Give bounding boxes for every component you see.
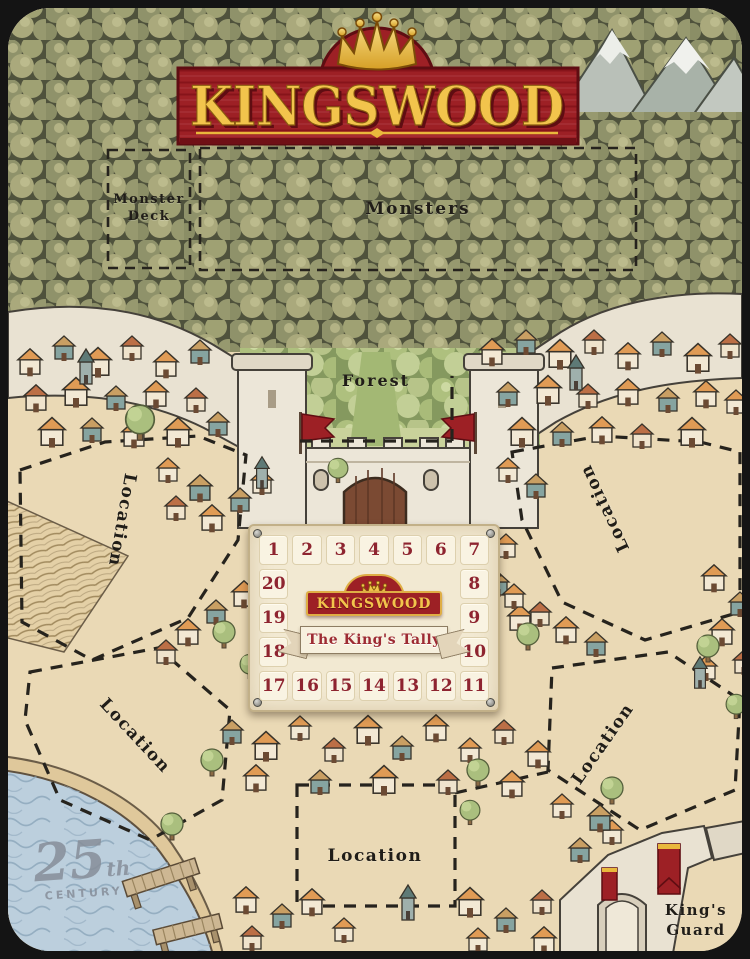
label-layer: Monster Deck Monsters Forest Location Lo… xyxy=(8,8,742,951)
location-label-upper-right: Location xyxy=(567,444,644,572)
tally-cell-8: 8 xyxy=(460,569,489,599)
location-label-upper-left: Location xyxy=(99,454,145,586)
game-board: KINGSWOOD KINGSWOOD xyxy=(8,8,742,951)
tally-cell-12: 12 xyxy=(426,671,455,701)
tally-cell-11: 11 xyxy=(460,671,489,701)
tally-cell-13: 13 xyxy=(393,671,422,701)
tally-cell-14: 14 xyxy=(359,671,388,701)
tally-track: 1 2 3 4 5 6 7 8 9 10 11 12 13 14 15 16 1… xyxy=(250,526,498,710)
tally-cell-1: 1 xyxy=(259,535,288,565)
monster-deck-label: Monster Deck xyxy=(108,150,190,268)
tally-cell-7: 7 xyxy=(460,535,489,565)
tally-cell-3: 3 xyxy=(326,535,355,565)
forest-label: Forest xyxy=(326,368,426,394)
location-label-lower-left: Location xyxy=(82,680,188,791)
tally-cell-17: 17 xyxy=(259,671,288,701)
watermark-number: 25th xyxy=(32,835,131,888)
tally-cell-9: 9 xyxy=(460,603,489,633)
tally-cell-20: 20 xyxy=(259,569,288,599)
tally-cell-2: 2 xyxy=(292,535,321,565)
tally-title-ribbon: The King's Tally xyxy=(288,625,460,655)
tally-cell-16: 16 xyxy=(292,671,321,701)
tally-cell-4: 4 xyxy=(359,535,388,565)
monsters-label: Monsters xyxy=(200,148,636,270)
publisher-watermark: 25th CENTURY xyxy=(32,835,132,903)
tally-cell-6: 6 xyxy=(426,535,455,565)
mini-logo-banner: KINGSWOOD xyxy=(306,591,442,616)
kings-guard-label: King's Guard xyxy=(650,896,742,944)
mini-kingswood-logo: KINGSWOOD xyxy=(306,591,442,616)
kingswood-playmat: KINGSWOOD KINGSWOOD xyxy=(0,0,750,959)
tally-title: The King's Tally xyxy=(307,632,441,648)
tally-cell-19: 19 xyxy=(259,603,288,633)
location-label-lower-right: Location xyxy=(556,684,650,804)
tally-center-art: KINGSWOOD The King's Tally xyxy=(292,569,455,667)
location-label-bottom: Location xyxy=(310,844,440,868)
kings-tally-card: 1 2 3 4 5 6 7 8 9 10 11 12 13 14 15 16 1… xyxy=(248,524,500,712)
tally-cell-5: 5 xyxy=(393,535,422,565)
tally-cell-15: 15 xyxy=(326,671,355,701)
